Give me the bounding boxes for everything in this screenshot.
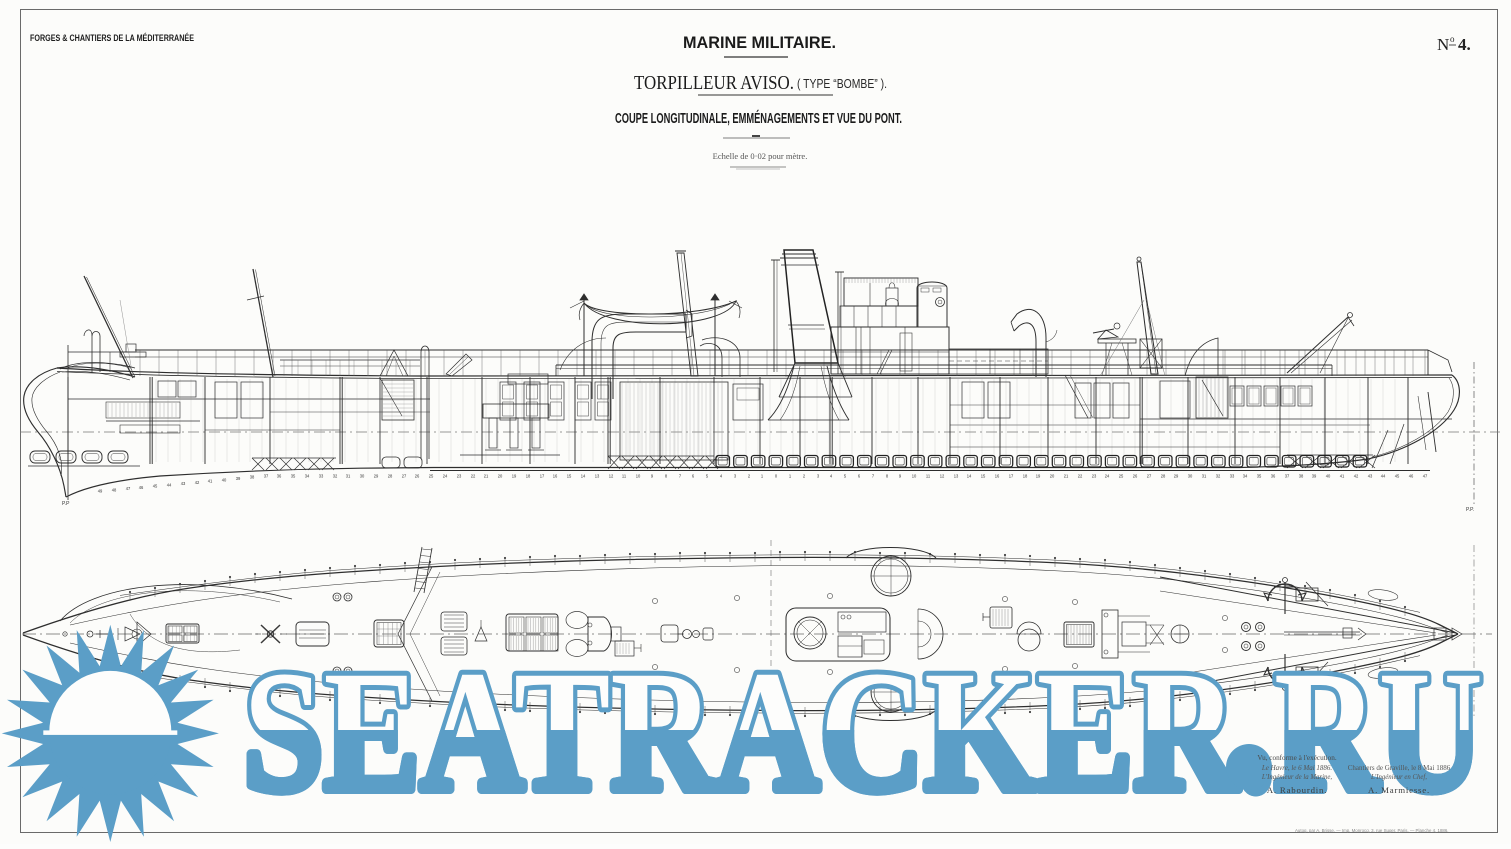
svg-text:47: 47: [1423, 474, 1428, 479]
svg-text:44: 44: [1381, 474, 1386, 479]
svg-text:22: 22: [1078, 474, 1083, 479]
svg-text:11: 11: [926, 474, 931, 479]
svg-text:31: 31: [1202, 474, 1207, 479]
svg-text:o: o: [1450, 34, 1455, 44]
svg-text:26: 26: [415, 474, 420, 479]
svg-text:29: 29: [1174, 474, 1179, 479]
svg-text:17: 17: [1009, 474, 1014, 479]
svg-text:L'Ingénieur de la Marine,: L'Ingénieur de la Marine,: [1261, 774, 1332, 781]
svg-text:30: 30: [1188, 474, 1193, 479]
svg-text:37: 37: [1285, 474, 1290, 479]
svg-text:46: 46: [139, 485, 144, 490]
svg-text:16: 16: [995, 474, 1000, 479]
svg-text:40: 40: [222, 477, 227, 482]
svg-text:43: 43: [1368, 474, 1373, 479]
svg-text:27: 27: [1147, 474, 1152, 479]
svg-text:Vu, conforme à l'exécution.: Vu, conforme à l'exécution.: [1257, 754, 1337, 762]
svg-text:24: 24: [443, 474, 448, 479]
svg-text:28: 28: [388, 474, 393, 479]
svg-text:42: 42: [1354, 474, 1359, 479]
svg-text:20: 20: [1050, 474, 1055, 479]
svg-text:46: 46: [1409, 474, 1414, 479]
svg-text:40: 40: [1326, 474, 1331, 479]
svg-text:15: 15: [567, 474, 572, 479]
svg-text:4.: 4.: [1458, 35, 1471, 54]
svg-text:34: 34: [1243, 474, 1248, 479]
svg-text:29: 29: [374, 474, 379, 479]
svg-text:MARINE MILITAIRE.: MARINE MILITAIRE.: [683, 33, 836, 52]
svg-text:37: 37: [264, 474, 269, 479]
svg-text:10: 10: [636, 474, 641, 479]
svg-text:48: 48: [112, 487, 117, 492]
svg-text:13: 13: [954, 474, 959, 479]
svg-text:43: 43: [181, 481, 186, 486]
svg-text:49: 49: [98, 489, 103, 494]
svg-text:P.P: P.P: [62, 501, 70, 507]
svg-text:A. Rabourdin.: A. Rabourdin.: [1267, 785, 1328, 795]
svg-text:33: 33: [319, 474, 324, 479]
svg-text:( TYPE “BOMBE” ).: ( TYPE “BOMBE” ).: [797, 77, 887, 91]
svg-text:SEATRACKER.RU: SEATRACKER.RU: [243, 636, 1483, 827]
svg-text:COUPE LONGITUDINALE, EMMÉNAGEM: COUPE LONGITUDINALE, EMMÉNAGEMENTS ET VU…: [615, 110, 902, 127]
svg-text:Echelle de 0·02 pour mètre.: Echelle de 0·02 pour mètre.: [713, 151, 808, 161]
svg-text:35: 35: [1257, 474, 1262, 479]
svg-text:45: 45: [1395, 474, 1400, 479]
svg-text:44: 44: [167, 482, 172, 487]
svg-text:12: 12: [940, 474, 945, 479]
svg-text:30: 30: [360, 474, 365, 479]
svg-text:13: 13: [595, 474, 600, 479]
svg-text:P.P.: P.P.: [1466, 507, 1474, 513]
svg-text:47: 47: [126, 486, 131, 491]
svg-text:19: 19: [512, 474, 517, 479]
svg-text:25: 25: [1119, 474, 1124, 479]
svg-text:24: 24: [1105, 474, 1110, 479]
svg-text:14: 14: [581, 474, 586, 479]
svg-text:14: 14: [967, 474, 972, 479]
svg-text:28: 28: [1161, 474, 1166, 479]
svg-text:Le Havre, le 6 Mai 1886.: Le Havre, le 6 Mai 1886.: [1261, 764, 1333, 772]
svg-text:Autog. par A. Brisse. — Imp. M: Autog. par A. Brisse. — Imp. Monrocq, 3,…: [1295, 828, 1449, 833]
svg-text:38: 38: [250, 475, 255, 480]
svg-text:34: 34: [305, 474, 310, 479]
svg-text:19: 19: [1036, 474, 1041, 479]
svg-text:32: 32: [1216, 474, 1221, 479]
svg-text:10: 10: [912, 474, 917, 479]
svg-text:21: 21: [1064, 474, 1069, 479]
svg-text:A. Marmiesse.: A. Marmiesse.: [1368, 785, 1430, 795]
svg-text:11: 11: [622, 474, 627, 479]
svg-text:41: 41: [208, 479, 213, 484]
svg-text:TORPILLEUR AVISO.: TORPILLEUR AVISO.: [634, 72, 794, 94]
svg-text:39: 39: [236, 476, 241, 481]
svg-text:26: 26: [1133, 474, 1138, 479]
svg-text:N: N: [1437, 35, 1449, 54]
svg-text:25: 25: [429, 474, 434, 479]
svg-text:42: 42: [195, 480, 200, 485]
svg-text:20: 20: [498, 474, 503, 479]
svg-text:22: 22: [471, 474, 476, 479]
svg-text:27: 27: [402, 474, 407, 479]
svg-text:35: 35: [291, 474, 296, 479]
svg-text:32: 32: [333, 474, 338, 479]
svg-text:23: 23: [457, 474, 462, 479]
svg-text:23: 23: [1092, 474, 1097, 479]
svg-text:31: 31: [346, 474, 351, 479]
svg-text:36: 36: [277, 474, 282, 479]
svg-text:L'Ingénieur en Chef,: L'Ingénieur en Chef,: [1370, 774, 1427, 781]
svg-text:18: 18: [526, 474, 531, 479]
svg-text:21: 21: [484, 474, 489, 479]
svg-text:Chantiers de Graville, le 8 Ma: Chantiers de Graville, le 8 Mai 1886: [1348, 764, 1451, 772]
svg-text:12: 12: [609, 474, 614, 479]
svg-text:45: 45: [153, 484, 158, 489]
svg-text:39: 39: [1312, 474, 1317, 479]
svg-text:16: 16: [553, 474, 558, 479]
svg-text:18: 18: [1023, 474, 1028, 479]
svg-text:17: 17: [540, 474, 545, 479]
svg-text:38: 38: [1299, 474, 1304, 479]
svg-text:36: 36: [1271, 474, 1276, 479]
svg-text:41: 41: [1340, 474, 1345, 479]
svg-text:15: 15: [981, 474, 986, 479]
svg-text:33: 33: [1230, 474, 1235, 479]
svg-text:FORGES & CHANTIERS DE LA MÉDIT: FORGES & CHANTIERS DE LA MÉDITERRANÉE: [30, 32, 194, 44]
